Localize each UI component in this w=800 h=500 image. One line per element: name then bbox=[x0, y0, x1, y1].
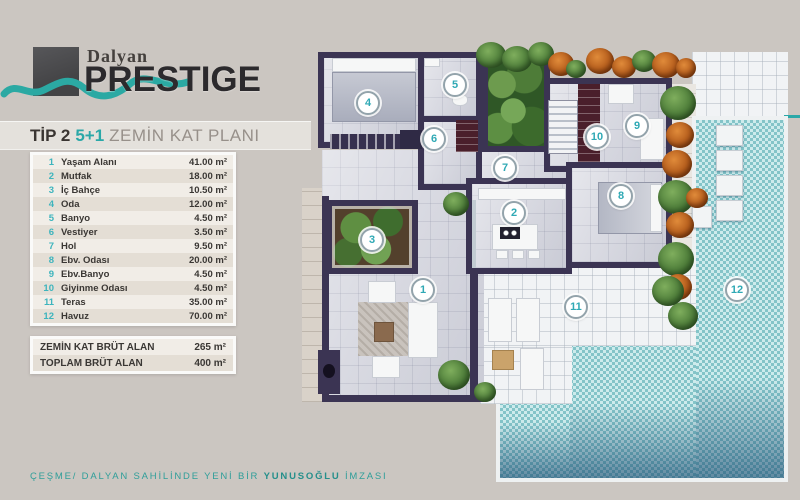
staircase bbox=[548, 100, 578, 154]
room-marker: 4 bbox=[356, 91, 380, 115]
chair bbox=[496, 250, 508, 259]
plant-icon bbox=[586, 48, 614, 74]
stepping-stone bbox=[716, 125, 743, 146]
gross-area-summary: ZEMİN KAT BRÜT ALAN265 m² TOPLAM BRÜT AL… bbox=[30, 336, 236, 374]
fireplace-bowl bbox=[323, 364, 335, 378]
armchair bbox=[372, 356, 400, 378]
pool-deep-end bbox=[500, 421, 570, 478]
cooktop bbox=[500, 227, 520, 239]
shoe-rack bbox=[456, 120, 478, 152]
tree-icon bbox=[438, 360, 470, 390]
armchair bbox=[368, 281, 396, 303]
sun-lounger bbox=[516, 298, 540, 342]
stepping-stone bbox=[716, 200, 743, 221]
plant-icon bbox=[658, 242, 694, 276]
plant-icon bbox=[676, 58, 696, 78]
side-table bbox=[492, 350, 514, 370]
table-row: 10Giyinme Odası4.50 m² bbox=[33, 281, 233, 295]
table-row: 9Ebv.Banyo4.50 m² bbox=[33, 267, 233, 281]
wardrobe bbox=[330, 134, 400, 149]
table-row: 3İç Bahçe10.50 m² bbox=[33, 183, 233, 197]
room-marker: 12 bbox=[725, 278, 749, 302]
sink bbox=[424, 58, 440, 67]
room-marker: 1 bbox=[411, 278, 435, 302]
room-marker: 6 bbox=[422, 127, 446, 151]
plant-icon bbox=[666, 122, 694, 148]
plant-icon bbox=[662, 150, 692, 178]
footer-tagline: ÇEŞME/ DALYAN SAHİLİNDE YENİ BİR YUNUSOĞ… bbox=[30, 471, 387, 482]
pool-area bbox=[500, 402, 570, 478]
stepping-stone bbox=[716, 150, 743, 171]
stepping-stone bbox=[716, 175, 743, 196]
table-row: 5Banyo4.50 m² bbox=[33, 211, 233, 225]
room-area-table: 1Yaşam Alanı41.00 m² 2Mutfak18.00 m² 3İç… bbox=[30, 152, 236, 326]
room-marker: 11 bbox=[564, 295, 588, 319]
bed-pillows bbox=[332, 58, 416, 72]
table-row: 7Hol9.50 m² bbox=[33, 239, 233, 253]
kitchen-counter bbox=[478, 188, 566, 200]
plant-icon bbox=[666, 212, 694, 238]
dressing-shelves bbox=[578, 84, 600, 162]
sun-lounger bbox=[488, 298, 512, 342]
top-right-terrace bbox=[692, 52, 788, 118]
room-marker: 7 bbox=[493, 156, 517, 180]
room-marker: 10 bbox=[585, 125, 609, 149]
plant-icon bbox=[668, 302, 698, 330]
room-marker: 5 bbox=[443, 73, 467, 97]
plan-units-label: 5+1 bbox=[75, 126, 104, 146]
table-row: 6Vestiyer3.50 m² bbox=[33, 225, 233, 239]
sun-lounger bbox=[520, 348, 544, 390]
room-marker: 9 bbox=[625, 114, 649, 138]
table-row: 11Teras35.00 m² bbox=[33, 295, 233, 309]
plant-icon bbox=[686, 188, 708, 208]
summary-row: ZEMİN KAT BRÜT ALAN265 m² bbox=[33, 339, 233, 355]
summary-row: TOPLAM BRÜT ALAN400 m² bbox=[33, 355, 233, 371]
plan-floor-label: ZEMİN KAT PLANI bbox=[109, 126, 259, 146]
room-marker: 3 bbox=[360, 228, 384, 252]
pool-deep-end bbox=[570, 404, 696, 478]
chair bbox=[512, 250, 524, 259]
table-row: 2Mutfak18.00 m² bbox=[33, 169, 233, 183]
plant-icon bbox=[660, 86, 696, 120]
pool-area bbox=[570, 344, 696, 478]
tree-icon bbox=[474, 382, 496, 402]
room-marker: 2 bbox=[502, 201, 526, 225]
chair bbox=[528, 250, 540, 259]
table-row: 12Havuz70.00 m² bbox=[33, 309, 233, 323]
table-row: 1Yaşam Alanı41.00 m² bbox=[33, 155, 233, 169]
wall bbox=[470, 268, 478, 398]
cabinet bbox=[400, 130, 422, 149]
tree-icon bbox=[652, 276, 684, 306]
brand-name-main: PRESTIGE bbox=[84, 60, 261, 100]
table-row: 8Ebv. Odası20.00 m² bbox=[33, 253, 233, 267]
glass-wall bbox=[472, 200, 476, 268]
sofa bbox=[408, 302, 438, 358]
plant-icon bbox=[566, 60, 586, 78]
shower-tray bbox=[608, 84, 634, 104]
brochure-page: Dalyan PRESTIGE TİP 2 5+1 ZEMİN KAT PLAN… bbox=[0, 0, 800, 500]
plan-title: TİP 2 5+1 ZEMİN KAT PLANI bbox=[0, 121, 311, 150]
coffee-table bbox=[374, 322, 394, 342]
pool-deep-end bbox=[696, 378, 784, 478]
fireplace bbox=[318, 350, 340, 394]
stepping-stone bbox=[692, 206, 712, 228]
footer-brand: YUNUSOĞLU bbox=[264, 471, 341, 482]
wall bbox=[322, 395, 484, 402]
plan-type-label: TİP 2 bbox=[30, 126, 70, 146]
tree-icon bbox=[443, 192, 469, 216]
room-marker: 8 bbox=[609, 184, 633, 208]
table-row: 4Oda12.00 m² bbox=[33, 197, 233, 211]
